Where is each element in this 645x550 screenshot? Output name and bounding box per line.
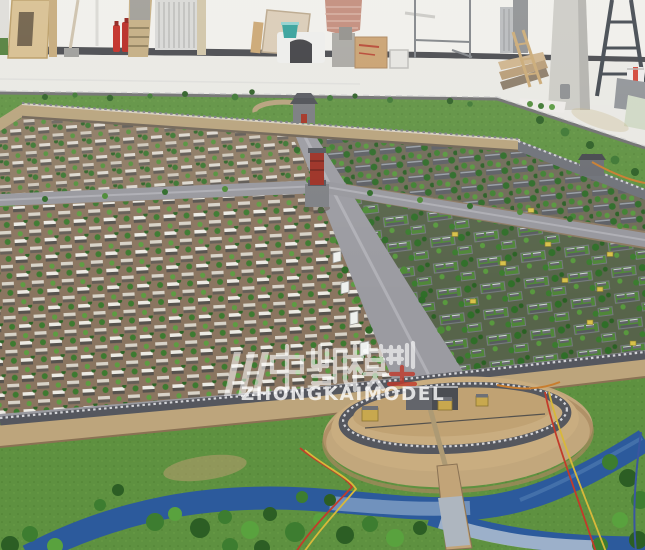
scene-canvas: ZHONGKAIMODEL (0, 0, 645, 550)
watermark-latin: ZHONGKAIMODEL (241, 384, 445, 405)
photo-scale-model-city: ZHONGKAIMODEL (0, 0, 645, 550)
light-haze (0, 0, 645, 550)
